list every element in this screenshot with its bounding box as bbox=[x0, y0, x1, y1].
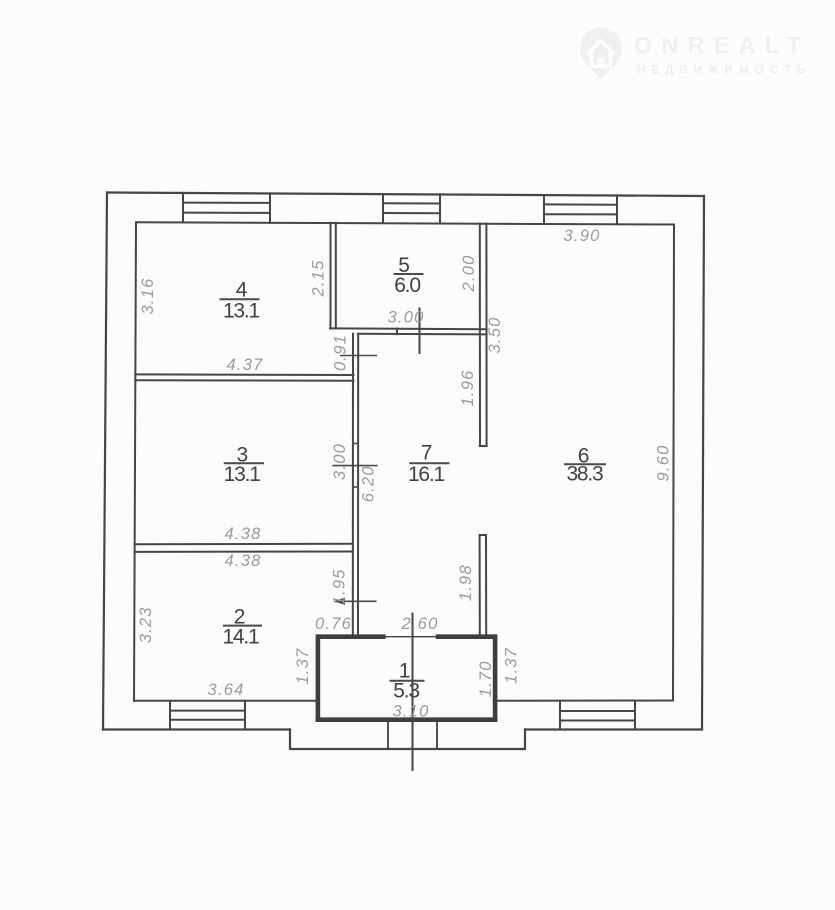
svg-text:1.37: 1.37 bbox=[294, 648, 312, 685]
svg-text:1.37: 1.37 bbox=[502, 647, 520, 684]
svg-text:4.38: 4.38 bbox=[225, 552, 262, 570]
svg-text:3.10: 3.10 bbox=[393, 703, 430, 721]
svg-text:НЕДВИЖИМОСТЬ: НЕДВИЖИМОСТЬ bbox=[637, 65, 811, 77]
svg-text:ONREALT: ONREALT bbox=[634, 32, 810, 58]
svg-text:1.96: 1.96 bbox=[459, 370, 477, 407]
svg-text:6.0: 6.0 bbox=[394, 274, 420, 297]
svg-text:1.98: 1.98 bbox=[457, 564, 475, 601]
svg-text:2.00: 2.00 bbox=[460, 255, 478, 293]
svg-text:38.3: 38.3 bbox=[566, 463, 603, 486]
svg-text:13.1: 13.1 bbox=[224, 463, 261, 486]
svg-text:6.20: 6.20 bbox=[360, 465, 378, 502]
svg-text:4.38: 4.38 bbox=[225, 525, 262, 543]
svg-text:14.1: 14.1 bbox=[222, 626, 259, 649]
svg-text:0.76: 0.76 bbox=[315, 615, 352, 633]
svg-text:3.16: 3.16 bbox=[139, 278, 157, 315]
svg-text:3.00: 3.00 bbox=[388, 309, 425, 327]
svg-text:3.50: 3.50 bbox=[486, 317, 504, 354]
svg-text:5.3: 5.3 bbox=[393, 680, 419, 703]
svg-text:16.1: 16.1 bbox=[408, 463, 445, 486]
svg-text:2.15: 2.15 bbox=[310, 260, 328, 298]
svg-text:0.91: 0.91 bbox=[332, 334, 350, 371]
svg-text:4.37: 4.37 bbox=[227, 356, 264, 374]
svg-text:2.60: 2.60 bbox=[401, 615, 439, 633]
svg-text:9.60: 9.60 bbox=[655, 445, 673, 482]
svg-text:1.70: 1.70 bbox=[477, 660, 495, 697]
svg-text:3.64: 3.64 bbox=[208, 681, 245, 699]
svg-text:7: 7 bbox=[421, 442, 432, 465]
svg-text:3.23: 3.23 bbox=[137, 606, 155, 643]
svg-text:4: 4 bbox=[236, 279, 248, 302]
svg-text:1.95: 1.95 bbox=[330, 568, 348, 605]
svg-text:3.90: 3.90 bbox=[564, 227, 601, 245]
svg-text:3.00: 3.00 bbox=[331, 443, 349, 480]
svg-text:13.1: 13.1 bbox=[223, 300, 260, 323]
